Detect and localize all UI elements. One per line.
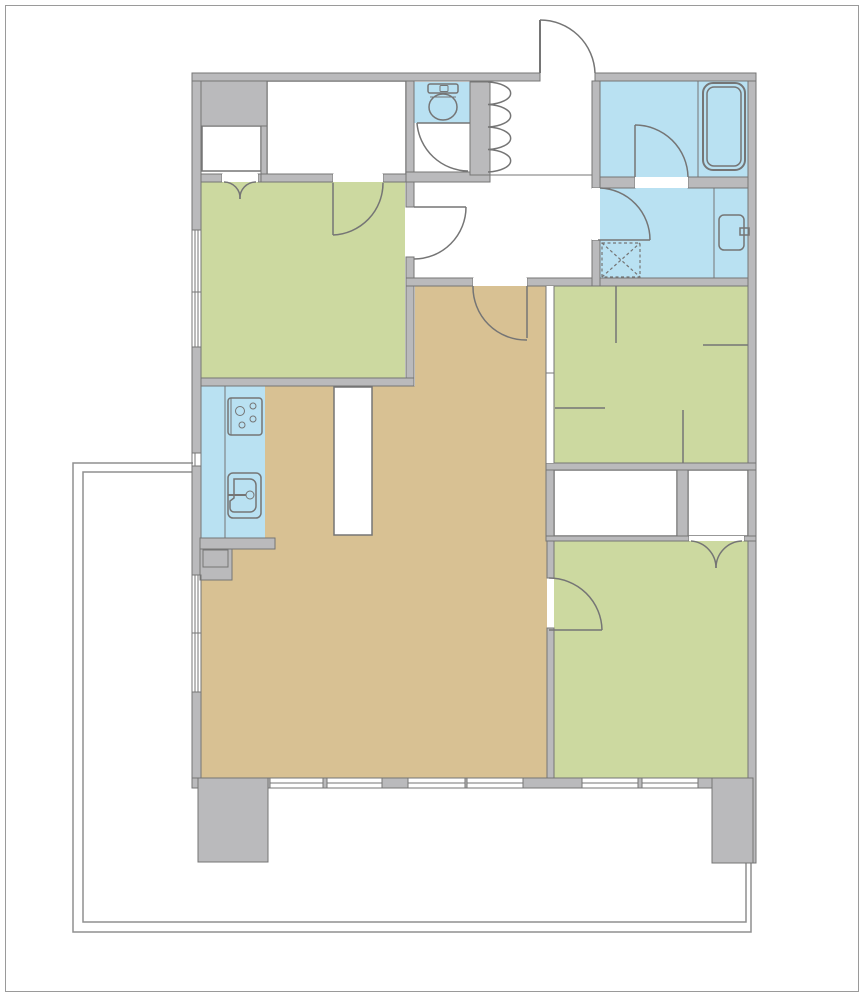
wall xyxy=(592,81,600,188)
toilet-room xyxy=(414,82,470,123)
pillar-bottom-right xyxy=(712,778,753,863)
closet-small-west xyxy=(202,126,261,171)
wall xyxy=(470,82,490,175)
wall xyxy=(698,778,712,788)
window-bedroom-west xyxy=(192,230,201,347)
window-living-south-3 xyxy=(408,778,465,788)
washroom xyxy=(598,188,748,278)
wall xyxy=(546,470,554,536)
wall xyxy=(192,692,201,778)
wall xyxy=(406,257,414,386)
wall xyxy=(261,126,267,176)
wall xyxy=(688,177,748,188)
closet-row-small xyxy=(688,470,748,536)
walk-in-closet xyxy=(267,81,406,176)
wall xyxy=(523,778,582,788)
island-counter xyxy=(334,387,372,535)
wall xyxy=(748,81,756,863)
floor-plan xyxy=(0,0,864,997)
wall xyxy=(638,778,642,788)
wall xyxy=(200,549,232,580)
opening xyxy=(635,177,688,188)
window-living-south-4 xyxy=(467,778,523,788)
floor-plan-canvas xyxy=(0,0,864,997)
pillar-bottom-left xyxy=(198,778,268,862)
wall xyxy=(592,240,600,286)
wall xyxy=(600,177,635,188)
pillar-top-left xyxy=(201,81,267,126)
wall xyxy=(406,278,473,286)
wall xyxy=(527,278,748,286)
opening xyxy=(473,278,527,286)
wall xyxy=(547,541,554,578)
entrance-door xyxy=(540,20,595,73)
wall xyxy=(744,536,756,541)
bathroom xyxy=(600,81,748,177)
window-bedroom-southeast-1 xyxy=(582,778,638,788)
opening xyxy=(333,174,383,182)
window-living-south-2 xyxy=(327,778,382,788)
opening xyxy=(222,174,258,182)
sliding-partition-northeast xyxy=(546,286,554,463)
wall xyxy=(200,538,275,549)
wall xyxy=(261,174,333,182)
wall xyxy=(192,347,201,453)
wall xyxy=(192,81,201,230)
wall xyxy=(595,73,756,81)
bedroom-southeast xyxy=(554,541,748,778)
opening xyxy=(592,188,600,240)
wall xyxy=(546,536,689,541)
kitchen xyxy=(201,386,265,538)
window-kitchen xyxy=(192,453,201,466)
window-living-west xyxy=(192,575,201,692)
bedroom-northeast xyxy=(554,286,748,463)
wall xyxy=(323,778,327,788)
wall xyxy=(192,73,540,81)
wall xyxy=(201,378,414,386)
wall xyxy=(547,628,554,778)
window-living-south-1 xyxy=(270,778,323,788)
hallway xyxy=(405,182,592,286)
wall xyxy=(383,174,406,182)
wall xyxy=(382,778,408,788)
window-bedroom-southeast-2 xyxy=(642,778,698,788)
wall xyxy=(406,81,414,207)
wall xyxy=(677,470,688,536)
toilet-door-nook xyxy=(414,123,470,172)
wall xyxy=(201,174,222,182)
closet-row-large xyxy=(554,470,677,536)
opening xyxy=(689,536,744,541)
wall xyxy=(546,463,756,470)
